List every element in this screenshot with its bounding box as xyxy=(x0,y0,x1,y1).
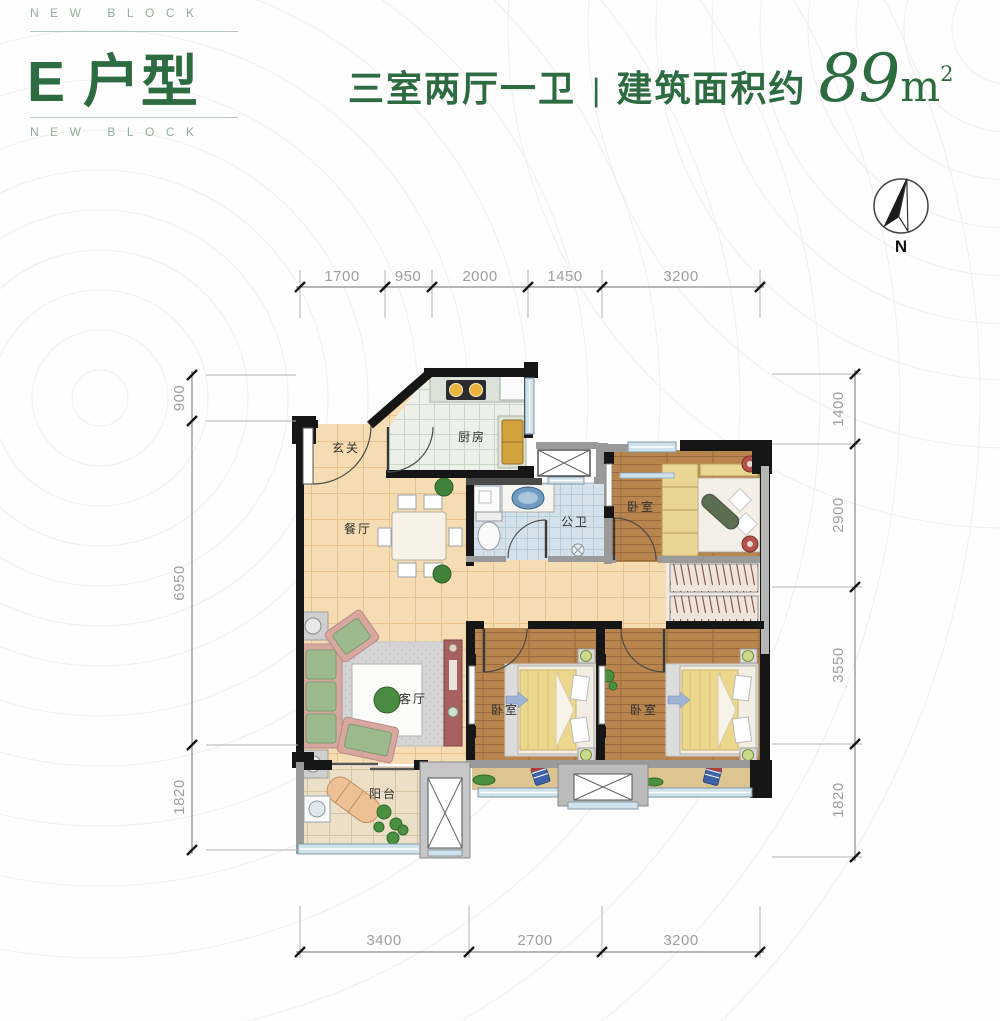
dim-label: 1700 xyxy=(324,268,359,285)
dim-label: 3200 xyxy=(663,268,698,285)
window xyxy=(478,788,566,797)
label-bedroom-left: 卧室 xyxy=(491,702,519,717)
north-label: N xyxy=(895,237,907,256)
bay-window xyxy=(558,764,648,809)
window xyxy=(298,844,420,854)
window-sill xyxy=(620,473,674,478)
dim-label: 2000 xyxy=(462,268,497,285)
window xyxy=(628,442,676,452)
floor-plan-page: NEW BLOCK E 户型 NEW BLOCK 三室两厅一卫 | 建筑面积约 … xyxy=(0,0,1000,1021)
dim-label: 2900 xyxy=(830,497,847,532)
label-entry: 玄关 xyxy=(332,440,360,455)
window xyxy=(646,788,752,797)
label-balcony: 阳台 xyxy=(369,786,397,801)
fridge xyxy=(500,376,525,400)
dim-label: 950 xyxy=(395,268,422,285)
dimension-right: 1400 2900 3550 1820 xyxy=(772,369,862,862)
hallway-floor xyxy=(472,558,668,628)
dining-table xyxy=(392,512,446,560)
label-bedroom-top: 卧室 xyxy=(627,499,655,514)
dim-label: 2700 xyxy=(517,932,552,949)
label-bathroom: 公卫 xyxy=(561,515,589,529)
label-bedroom-right: 卧室 xyxy=(630,702,658,717)
toilet xyxy=(478,522,500,550)
dimension-bottom: 3400 2700 3200 xyxy=(295,906,765,958)
dim-label: 3400 xyxy=(366,932,401,949)
bedroom-top-furniture xyxy=(662,456,760,556)
plant xyxy=(377,805,391,819)
dim-label: 1400 xyxy=(830,391,847,426)
dimension-top: 1700 950 2000 1450 3200 xyxy=(295,268,765,318)
label-dining: 餐厅 xyxy=(344,521,372,536)
window xyxy=(525,378,534,434)
dim-label: 1820 xyxy=(830,782,847,817)
dim-label: 3200 xyxy=(663,932,698,949)
plant xyxy=(435,478,453,496)
window xyxy=(548,477,584,484)
north-indicator: N xyxy=(874,176,928,256)
plant xyxy=(374,687,400,713)
dimension-left: 900 6950 1820 xyxy=(171,370,298,855)
floor-plan: 玄关 厨房 餐厅 公卫 卧室 客厅 卧室 卧室 阳台 1700 950 2000… xyxy=(0,0,1000,1021)
label-kitchen: 厨房 xyxy=(458,429,486,444)
dim-label: 6950 xyxy=(171,565,188,600)
tv-cabinet xyxy=(444,640,462,746)
elevator-shaft xyxy=(420,762,470,858)
dim-label: 1450 xyxy=(547,268,582,285)
dim-label: 1820 xyxy=(171,779,188,814)
label-living: 客厅 xyxy=(399,691,427,706)
shaft-duct xyxy=(538,450,590,476)
plant xyxy=(433,565,451,583)
dim-label: 900 xyxy=(171,385,188,412)
dim-label: 3550 xyxy=(830,647,847,682)
